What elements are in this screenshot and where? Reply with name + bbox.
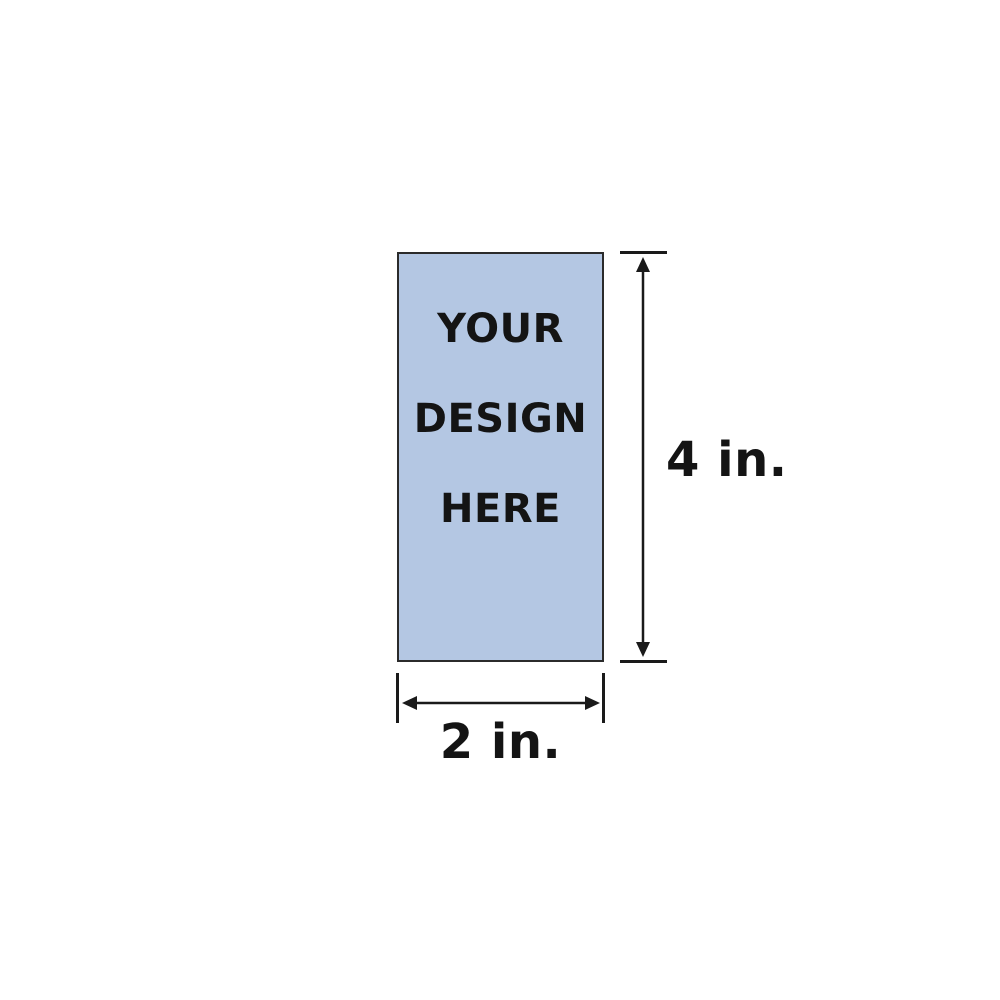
height-dimension-bottom-cap bbox=[620, 660, 667, 663]
width-label: 2 in. bbox=[397, 714, 604, 770]
design-placeholder-rect: YOUR DESIGN HERE bbox=[397, 252, 604, 662]
height-label: 4 in. bbox=[666, 432, 787, 488]
placeholder-text-line-1: YOUR bbox=[437, 306, 564, 352]
placeholder-text: YOUR DESIGN HERE bbox=[414, 307, 588, 532]
height-dimension-arrow-icon bbox=[631, 256, 655, 658]
width-dimension-arrow-icon bbox=[401, 691, 601, 715]
height-dimension-top-cap bbox=[620, 251, 667, 254]
dimension-diagram: YOUR DESIGN HERE 4 in. 2 in. bbox=[0, 0, 1000, 1000]
placeholder-text-line-2: DESIGN bbox=[414, 396, 588, 442]
placeholder-text-line-3: HERE bbox=[440, 486, 561, 532]
